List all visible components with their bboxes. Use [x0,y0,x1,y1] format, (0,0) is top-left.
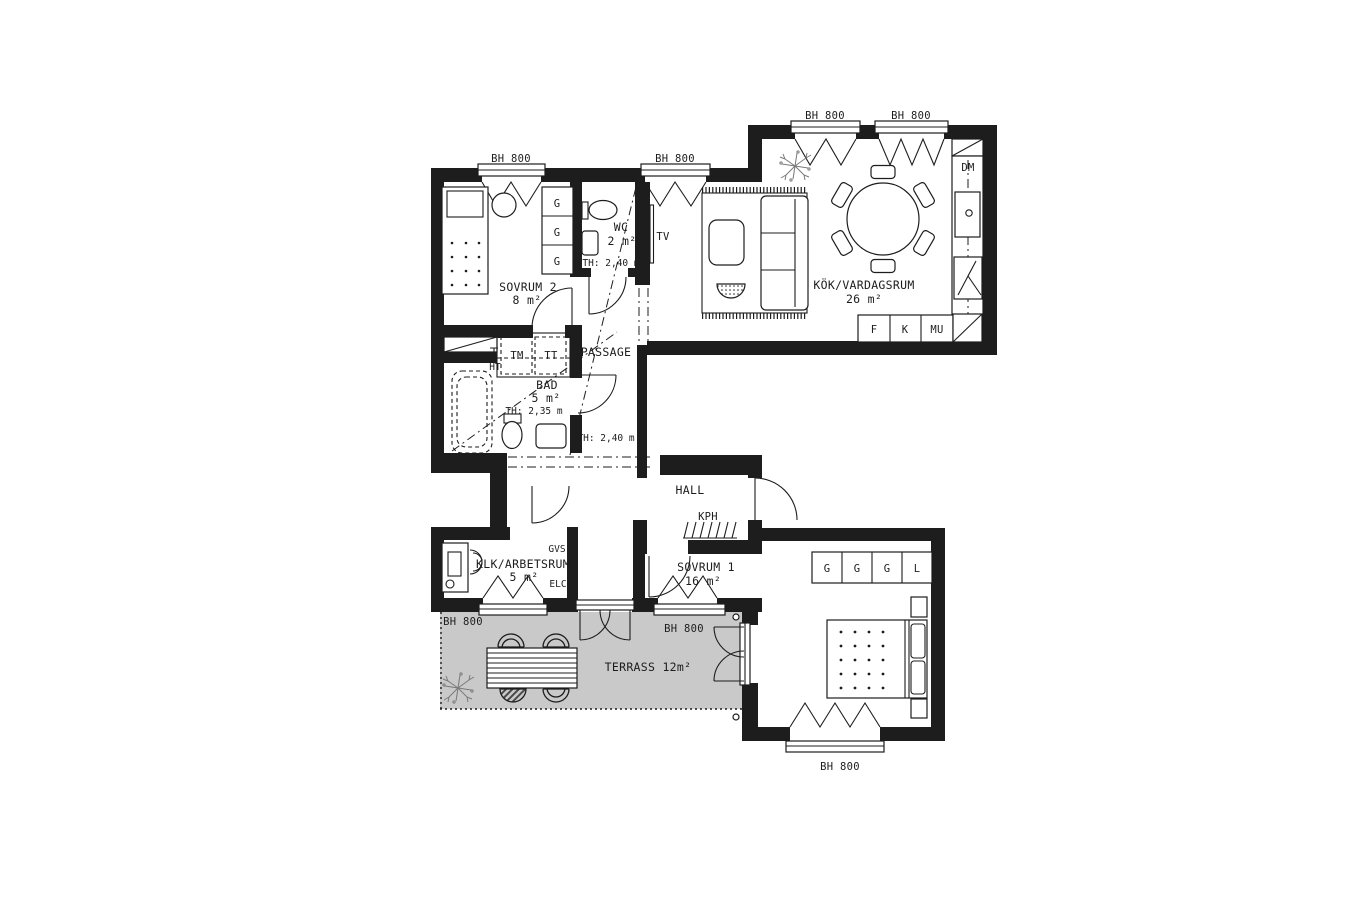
fridge-label: F [871,324,878,336]
room-area-klk: 5 m² [510,570,539,584]
tv-label: TV [656,231,670,243]
nightstand [911,597,927,617]
wardrobe-label: G [824,563,831,575]
bathtub [452,371,492,453]
room-area-sovrum1: 16 m² [685,574,721,588]
room-area-sovrum2: 8 m² [513,293,542,307]
toilet-tank [582,202,588,219]
window-height-label: BH 800 [805,110,845,122]
room-label-klk: KLK/ARBETSRUM [476,557,570,571]
sink [536,424,566,448]
nightstand [911,699,927,718]
door-bad [578,375,616,413]
toilet [589,201,617,220]
sink [582,231,598,255]
room-area-wc: 2 m² [608,234,637,248]
dining-set [830,166,935,273]
elc-label: ELC [549,579,566,590]
towel-dryer-label: HT [489,362,501,373]
wardrobe-label: G [554,227,561,239]
window-height-label: BH 800 [664,623,704,635]
armchair [709,220,744,265]
plant [780,151,811,181]
washer-label: TM [510,350,523,362]
room-label-bad: BAD [536,378,558,392]
kitchen-counter [952,156,983,341]
shaft [444,337,497,352]
room-label-kok: KÖK/VARDAGSRUM [813,276,914,292]
pouf [717,284,745,298]
door-klk [532,486,569,523]
window-kok-west [641,164,710,206]
sovrum1-furniture [812,552,932,718]
window-height-label: BH 800 [891,110,931,122]
ceiling-height-bad: TH: 2,35 m [505,406,562,417]
ceiling-height-wc: TH: 2,40 m [582,258,639,269]
room-area-kok: 26 m² [846,292,882,306]
window-height-label: BH 800 [443,616,483,628]
freezer-label: K [902,324,909,336]
room-label-sovrum2: SOVRUM 2 [499,280,557,294]
window-kok-top1 [791,121,860,165]
window-height-label: BH 800 [491,153,531,165]
window-height-label: BH 800 [820,761,860,773]
ceiling-height-passage: TH: 2,40 m [577,433,634,444]
micro-label: MU [930,324,943,336]
gvs-label: GVS [548,544,565,555]
terrace-table [487,648,577,688]
room-label-sovrum1: SOVRUM 1 [677,560,735,574]
dryer-label: TT [544,350,558,362]
floor-plan: BH 800 BH 800 BH 800 BH 800 BH 800 BH 80… [0,0,1366,911]
door-wc [589,277,626,314]
tv [650,205,654,263]
linen-label: L [914,563,921,575]
dishwasher-label: DM [961,162,974,174]
terrace-post [733,714,739,720]
room-label-passage: PASSAGE [581,345,632,359]
single-bed [442,187,488,294]
wardrobe-label: G [554,198,561,210]
window-sovrum1-south [786,703,884,752]
window-kok-top2 [875,121,948,165]
hall-fixtures [683,522,737,538]
coatrack-label: KPH [698,511,718,523]
window-height-label: BH 800 [655,153,695,165]
room-label-terrass: TERRASS 12m² [605,660,692,674]
double-bed [827,620,927,698]
kok-vardagsrum-furniture [650,151,983,342]
stove [954,257,982,299]
kitchen-sink [955,192,980,237]
wardrobe-label: G [554,256,561,268]
room-label-hall: HALL [676,483,705,497]
room-area-bad: 5 m² [532,391,561,405]
room-label-wc: WC [614,220,628,234]
side-table [492,193,516,217]
terrace-post [733,614,739,620]
wardrobe-label: G [884,563,891,575]
dining-table [847,183,919,255]
door-entrance [755,478,797,520]
floor-plan-page: BH 800 BH 800 BH 800 BH 800 BH 800 BH 80… [0,0,1366,911]
laundry-niche [497,333,570,377]
kitchen-corner-top [952,139,983,156]
coat-rack [683,522,737,538]
wardrobe-label: G [854,563,861,575]
toilet [502,422,522,449]
sofa [761,196,808,310]
